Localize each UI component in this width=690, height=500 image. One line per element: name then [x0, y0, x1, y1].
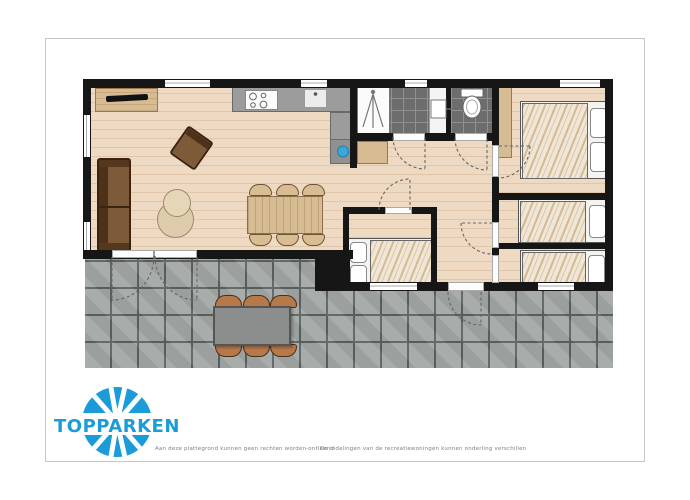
wall-top [83, 79, 613, 88]
disclaimer-right: De indelingen van de recreatiewoningen k… [320, 446, 526, 452]
bathroom-vanity [429, 87, 447, 134]
door-bedroom-double [492, 145, 499, 177]
window [84, 115, 90, 157]
duvet [522, 103, 588, 179]
window [370, 283, 417, 290]
pillow [589, 205, 606, 238]
wall-bedroom2-3-divider [492, 243, 613, 249]
duvet [520, 201, 586, 243]
shower [357, 87, 390, 134]
disclaimer-separator: - [306, 446, 308, 452]
wall-midbedroom-left [343, 207, 349, 291]
wall-bedroom1-bottom [492, 193, 613, 200]
window [301, 80, 327, 87]
window [560, 80, 600, 87]
door-bedroom-middle [385, 207, 412, 214]
wall-midbedroom-right [431, 207, 437, 291]
door-toilet [455, 133, 487, 141]
wardrobe [498, 86, 512, 158]
dining-chair [276, 184, 299, 196]
wall-bath-toilet [446, 85, 451, 133]
dining-table [247, 196, 323, 234]
outdoor-dining-table [213, 306, 291, 346]
window [405, 80, 427, 87]
pillow [588, 255, 605, 285]
sofa [97, 158, 131, 252]
window [84, 222, 90, 250]
wall-right [605, 79, 613, 291]
side-table-small [163, 189, 191, 217]
double-bed [520, 101, 610, 179]
hall-cabinet [357, 141, 388, 164]
door-bedroom-right-2 [492, 255, 499, 283]
kitchen-sink [304, 89, 327, 108]
french-door [112, 250, 197, 258]
door-bathroom [393, 133, 425, 141]
floorplan-sheet: TOPPARKEN Aan deze plattegrond kunnen ge… [0, 0, 690, 500]
dining-chair [302, 184, 325, 196]
door-terrace [448, 282, 484, 291]
single-bed-right-1 [518, 199, 610, 243]
window [165, 80, 210, 87]
door-bedroom-right-1 [492, 222, 499, 248]
stove [245, 90, 278, 110]
dining-chair [249, 184, 272, 196]
window [538, 283, 574, 290]
wall-kitchen-bath [350, 79, 357, 168]
